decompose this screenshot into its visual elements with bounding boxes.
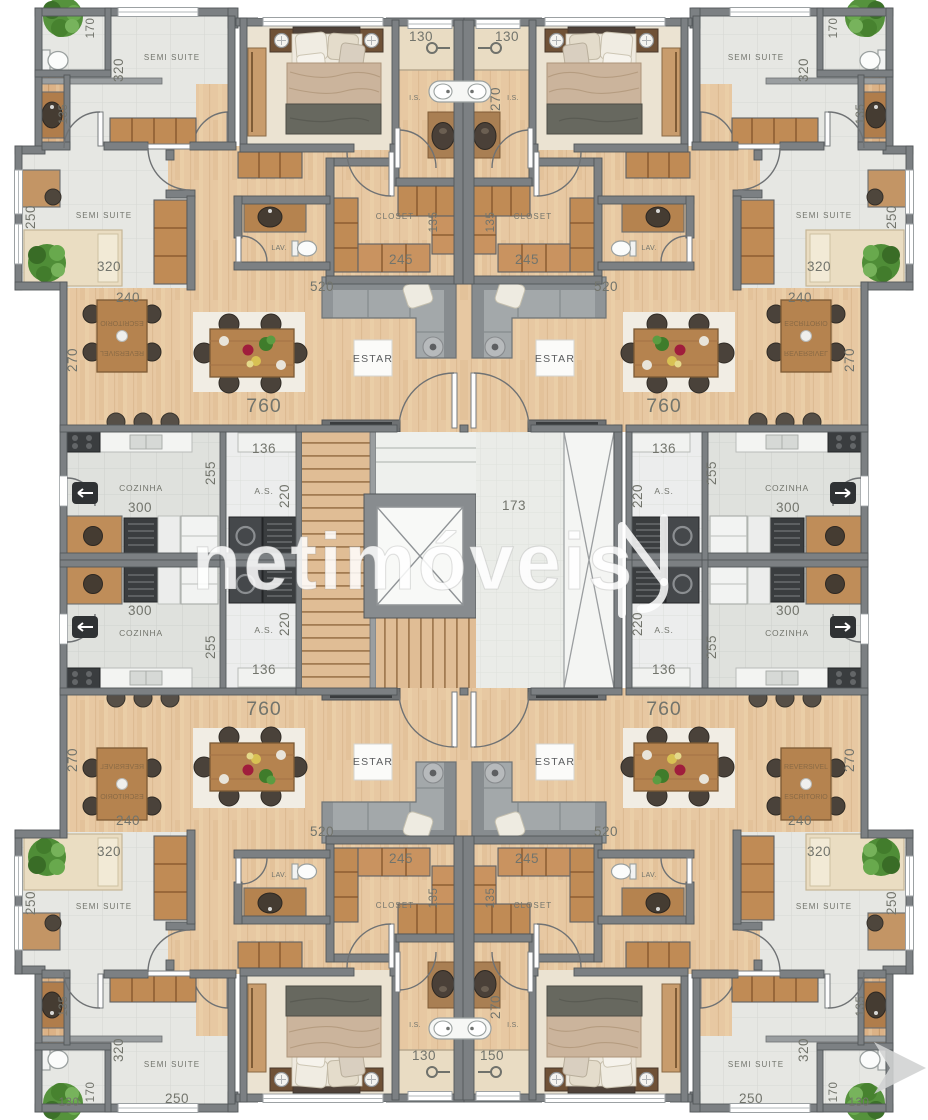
svg-text:320: 320 — [111, 1038, 126, 1062]
svg-text:A.S.: A.S. — [254, 486, 273, 496]
svg-text:220: 220 — [277, 484, 292, 508]
svg-text:250: 250 — [884, 891, 899, 915]
svg-text:760: 760 — [246, 698, 282, 720]
svg-text:170: 170 — [828, 1082, 840, 1103]
svg-text:520: 520 — [310, 824, 334, 839]
svg-text:270: 270 — [488, 87, 503, 111]
svg-text:netimóveis: netimóveis — [192, 517, 635, 606]
svg-text:300: 300 — [128, 500, 152, 515]
svg-text:136: 136 — [252, 441, 276, 456]
svg-text:SEMI SUITE: SEMI SUITE — [76, 902, 132, 911]
svg-text:245: 245 — [389, 252, 413, 267]
svg-text:250: 250 — [165, 1091, 189, 1106]
svg-text:245: 245 — [389, 851, 413, 866]
svg-text:COZINHA: COZINHA — [119, 483, 163, 493]
svg-text:220: 220 — [630, 612, 645, 636]
svg-text:250: 250 — [23, 205, 38, 229]
svg-text:130: 130 — [409, 29, 433, 44]
svg-text:270: 270 — [842, 348, 857, 372]
svg-text:135: 135 — [428, 888, 440, 909]
svg-text:240: 240 — [116, 290, 140, 305]
svg-text:520: 520 — [594, 824, 618, 839]
svg-text:SEMI SUITE: SEMI SUITE — [144, 53, 200, 62]
svg-text:LAV.: LAV. — [641, 872, 656, 879]
svg-text:300: 300 — [776, 500, 800, 515]
svg-text:135: 135 — [485, 212, 497, 233]
svg-text:130: 130 — [495, 29, 519, 44]
svg-text:520: 520 — [310, 279, 334, 294]
svg-text:135: 135 — [855, 104, 867, 125]
svg-text:ESTAR: ESTAR — [535, 756, 575, 768]
svg-text:130: 130 — [849, 1097, 870, 1109]
svg-text:135: 135 — [58, 996, 70, 1017]
svg-text:760: 760 — [646, 395, 682, 417]
svg-text:255: 255 — [203, 461, 218, 485]
svg-text:ESTAR: ESTAR — [353, 756, 393, 768]
svg-text:320: 320 — [796, 58, 811, 82]
svg-text:ESTAR: ESTAR — [353, 353, 393, 365]
svg-text:300: 300 — [776, 603, 800, 618]
svg-text:130: 130 — [59, 1097, 80, 1109]
svg-text:250: 250 — [23, 891, 38, 915]
svg-text:250: 250 — [739, 1091, 763, 1106]
svg-text:170: 170 — [828, 18, 840, 39]
svg-text:LAV.: LAV. — [271, 245, 286, 252]
svg-text:220: 220 — [630, 484, 645, 508]
svg-text:320: 320 — [807, 844, 831, 859]
svg-text:255: 255 — [704, 635, 719, 659]
svg-text:520: 520 — [594, 279, 618, 294]
svg-text:135: 135 — [485, 888, 497, 909]
svg-text:240: 240 — [788, 290, 812, 305]
svg-text:A.S.: A.S. — [654, 625, 673, 635]
svg-text:I.S.: I.S. — [409, 95, 421, 102]
svg-text:136: 136 — [252, 662, 276, 677]
svg-text:A.S.: A.S. — [654, 486, 673, 496]
svg-text:240: 240 — [788, 813, 812, 828]
svg-text:SEMI SUITE: SEMI SUITE — [728, 1060, 784, 1069]
svg-text:135: 135 — [428, 212, 440, 233]
svg-text:130: 130 — [412, 1048, 436, 1063]
svg-text:SEMI SUITE: SEMI SUITE — [76, 211, 132, 220]
svg-text:LAV.: LAV. — [271, 872, 286, 879]
svg-text:255: 255 — [203, 635, 218, 659]
svg-text:320: 320 — [111, 58, 126, 82]
svg-text:240: 240 — [116, 813, 140, 828]
svg-text:135: 135 — [58, 104, 70, 125]
svg-text:I.S.: I.S. — [507, 1022, 519, 1029]
svg-text:250: 250 — [884, 205, 899, 229]
svg-text:150: 150 — [480, 1048, 504, 1063]
svg-text:255: 255 — [704, 461, 719, 485]
svg-text:I.S.: I.S. — [409, 1022, 421, 1029]
svg-text:SEMI SUITE: SEMI SUITE — [144, 1060, 200, 1069]
svg-text:136: 136 — [652, 441, 676, 456]
svg-text:COZINHA: COZINHA — [119, 628, 163, 638]
svg-text:320: 320 — [807, 259, 831, 274]
svg-text:I.S.: I.S. — [507, 95, 519, 102]
svg-text:320: 320 — [97, 259, 121, 274]
svg-text:CLOSET: CLOSET — [376, 901, 415, 910]
svg-text:CLOSET: CLOSET — [514, 212, 553, 221]
svg-text:A.S.: A.S. — [254, 625, 273, 635]
svg-text:173: 173 — [502, 498, 526, 513]
svg-text:SEMI SUITE: SEMI SUITE — [796, 902, 852, 911]
svg-text:270: 270 — [842, 748, 857, 772]
svg-text:170: 170 — [85, 1082, 97, 1103]
svg-text:245: 245 — [515, 252, 539, 267]
svg-text:SEMI SUITE: SEMI SUITE — [796, 211, 852, 220]
svg-text:CLOSET: CLOSET — [514, 901, 553, 910]
svg-text:270: 270 — [65, 748, 80, 772]
svg-text:320: 320 — [97, 844, 121, 859]
svg-text:SEMI SUITE: SEMI SUITE — [728, 53, 784, 62]
svg-text:ESTAR: ESTAR — [535, 353, 575, 365]
svg-text:CLOSET: CLOSET — [376, 212, 415, 221]
svg-text:760: 760 — [646, 698, 682, 720]
svg-text:COZINHA: COZINHA — [765, 628, 809, 638]
svg-text:135: 135 — [855, 996, 867, 1017]
svg-text:170: 170 — [85, 18, 97, 39]
svg-text:300: 300 — [128, 603, 152, 618]
svg-text:COZINHA: COZINHA — [765, 483, 809, 493]
svg-text:270: 270 — [65, 348, 80, 372]
svg-text:LAV.: LAV. — [641, 245, 656, 252]
svg-text:270: 270 — [488, 995, 503, 1019]
svg-text:320: 320 — [796, 1038, 811, 1062]
svg-text:220: 220 — [277, 612, 292, 636]
svg-text:760: 760 — [246, 395, 282, 417]
svg-text:136: 136 — [652, 662, 676, 677]
svg-text:245: 245 — [515, 851, 539, 866]
